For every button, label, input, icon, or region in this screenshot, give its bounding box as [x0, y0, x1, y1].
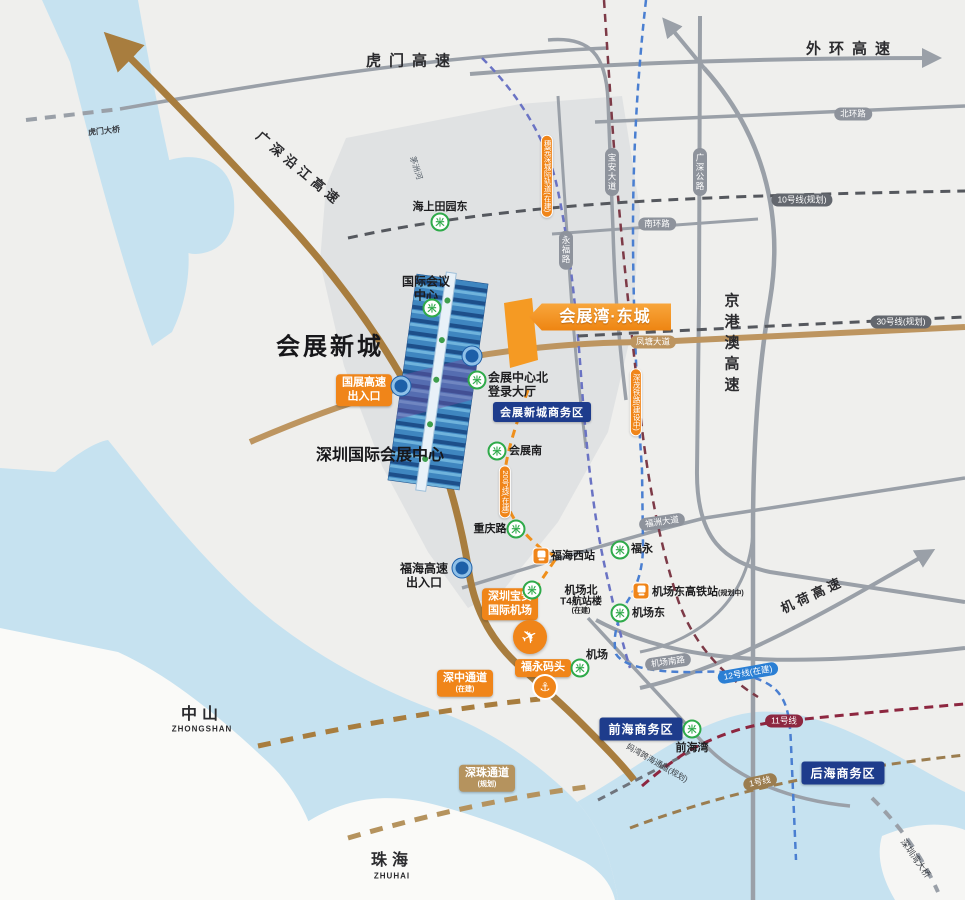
anchor-icon: ⚓	[534, 676, 556, 698]
metro-icon-huizhan-bei: 米	[468, 371, 487, 390]
huizhan-xincheng-label: 会展新城	[276, 327, 384, 362]
metro-icon-intl-conference: 米	[423, 299, 442, 318]
station-label-jichang: 机场	[586, 646, 608, 662]
qianhai-badge: 前海商务区	[599, 718, 682, 741]
shenzhu-line1: 深珠通道	[465, 767, 509, 781]
station-label-jichangbei: 机场北 T4航站楼 (在建)	[560, 585, 602, 616]
yongfu-road-pill: 永福路	[559, 231, 573, 270]
coastal-road	[596, 620, 965, 660]
transit-map: 虎门大桥 虎门高速 外环高速 广深沿江高速 茅洲河 京港澳高速 机荷高速 会展新…	[0, 0, 965, 900]
line10-pill: 10号线(规划)	[771, 193, 832, 206]
station-label-huizhan-nan: 会展南	[509, 442, 542, 458]
nanhuan-road-pill: 南环路	[638, 217, 676, 230]
jichangbei-line2: T4航站楼	[560, 597, 602, 608]
metro-icon-jichangbei: 米	[523, 581, 542, 600]
jichangbei-line1: 机场北	[560, 585, 602, 597]
jinggangao-expressway-label: 京港澳高速	[721, 293, 742, 398]
shenzhu-corridor-badge: 深珠通道 (规划)	[459, 765, 515, 792]
airport-badge-line2: 国际机场	[488, 604, 532, 618]
station-label-jichangdong-hsr: 机场东高铁站(规划中)	[652, 583, 744, 599]
zhuhai-label: 珠海	[371, 846, 413, 870]
shenzhong-line2: (在建)	[443, 686, 487, 695]
zhuhai-en-label: ZHUHAI	[374, 872, 410, 881]
ferry-badge: 福永码头	[515, 659, 571, 677]
zhongshan-label: 中山	[181, 700, 223, 724]
station-label-qianhaiwan: 前海湾	[676, 739, 709, 755]
station-label-fuyong: 福永	[631, 540, 653, 556]
fengtang-avenue-pill: 凤塘大道	[630, 335, 676, 348]
line11-pill: 11号线	[765, 714, 803, 727]
shenzhu-line2: (规划)	[465, 781, 509, 790]
jichangdong-hsr-sub: (规划中)	[718, 590, 744, 597]
station-label-fuhaixi: 福海西站	[551, 547, 595, 563]
houhai-badge: 后海商务区	[801, 762, 884, 785]
shenzhong-line1: 深中通道	[443, 672, 487, 686]
beihuan-road	[595, 106, 965, 122]
metro-icon-fuyong: 米	[611, 541, 630, 560]
guangshen-highway-pill: 广深公路	[693, 148, 707, 196]
fuhai-exit-line2: 出入口	[400, 576, 448, 590]
metro-icon-chongqinglu: 米	[507, 520, 526, 539]
station-label-chongqinglu: 重庆路	[474, 520, 507, 536]
metro-icon-huizhan-nan: 米	[488, 442, 507, 461]
zhongshan-en-label: ZHONGSHAN	[172, 725, 233, 734]
project-parcel	[504, 298, 538, 368]
metro-icon-haishangtianyuandong: 米	[431, 213, 450, 232]
waihuan-expressway-label: 外环高速	[806, 38, 898, 59]
line30-pill: 30号线(规划)	[870, 315, 931, 328]
metro-icon-jichang: 米	[571, 659, 590, 678]
jichangdong-hsr-name: 机场东高铁站	[652, 586, 718, 598]
metro-icon-jichangdong: 米	[611, 604, 630, 623]
guozhan-exit-badge: 国展高速 出入口	[336, 374, 392, 406]
cbd-badge: 会展新城商务区	[493, 402, 591, 422]
beihuan-road-pill: 北环路	[834, 107, 872, 120]
fuhai-exit-line1: 福海高速	[400, 562, 448, 576]
interchange-icon-fuhai	[453, 559, 472, 578]
humen-expressway-road	[120, 48, 608, 109]
line20-pill: 20号线(在建)	[499, 465, 511, 518]
airplane-icon: ✈	[513, 620, 547, 654]
szicec-label: 深圳国际会展中心	[316, 441, 444, 465]
train-icon-jichangdong-hsr	[634, 584, 649, 599]
shenmao-railway-pill: 深茂铁路(建设中)	[630, 368, 642, 436]
suiwanshen-rail-pill: 穗莞深城际轨道(在建)	[541, 135, 553, 218]
humen-expressway-label: 虎门高速	[366, 50, 458, 71]
guozhan-exit-line2: 出入口	[342, 390, 386, 404]
project-banner: 会展湾·东城	[529, 304, 671, 331]
fuhai-exit-label: 福海高速 出入口	[400, 562, 448, 591]
interchange-icon-fengtang	[463, 347, 482, 366]
metro-icon-qianhaiwan: 米	[683, 720, 702, 739]
station-label-jichangdong: 机场东	[632, 604, 665, 620]
shenzhong-corridor-badge: 深中通道 (在建)	[437, 670, 493, 697]
airplane-glyph: ✈	[518, 623, 543, 651]
train-icon-fuhaixi	[534, 549, 549, 564]
station-label-huizhan-bei-line2: 登录大厅	[488, 383, 536, 400]
jichangbei-line3: (在建)	[560, 608, 602, 616]
baoan-avenue-pill: 宝安大道	[605, 148, 619, 196]
interchange-icon-guozhan	[392, 377, 411, 396]
guozhan-exit-line1: 国展高速	[342, 376, 386, 390]
